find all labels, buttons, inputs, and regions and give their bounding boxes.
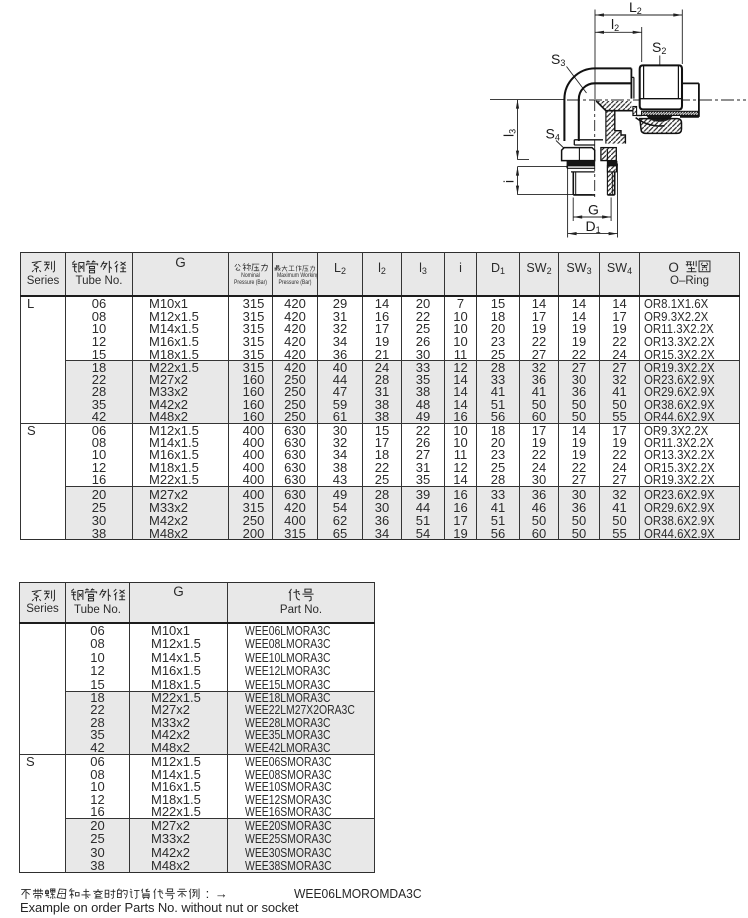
svg-text:l3: l3 [501,129,518,137]
svg-text:S3: S3 [551,51,565,68]
svg-text:G: G [588,202,599,218]
svg-text:l2: l2 [611,16,619,33]
svg-text:S4: S4 [546,126,560,143]
svg-text:D1: D1 [586,218,601,235]
svg-text:S2: S2 [652,39,666,56]
svg-text:L2: L2 [629,0,642,16]
svg-text:i: i [501,180,517,183]
